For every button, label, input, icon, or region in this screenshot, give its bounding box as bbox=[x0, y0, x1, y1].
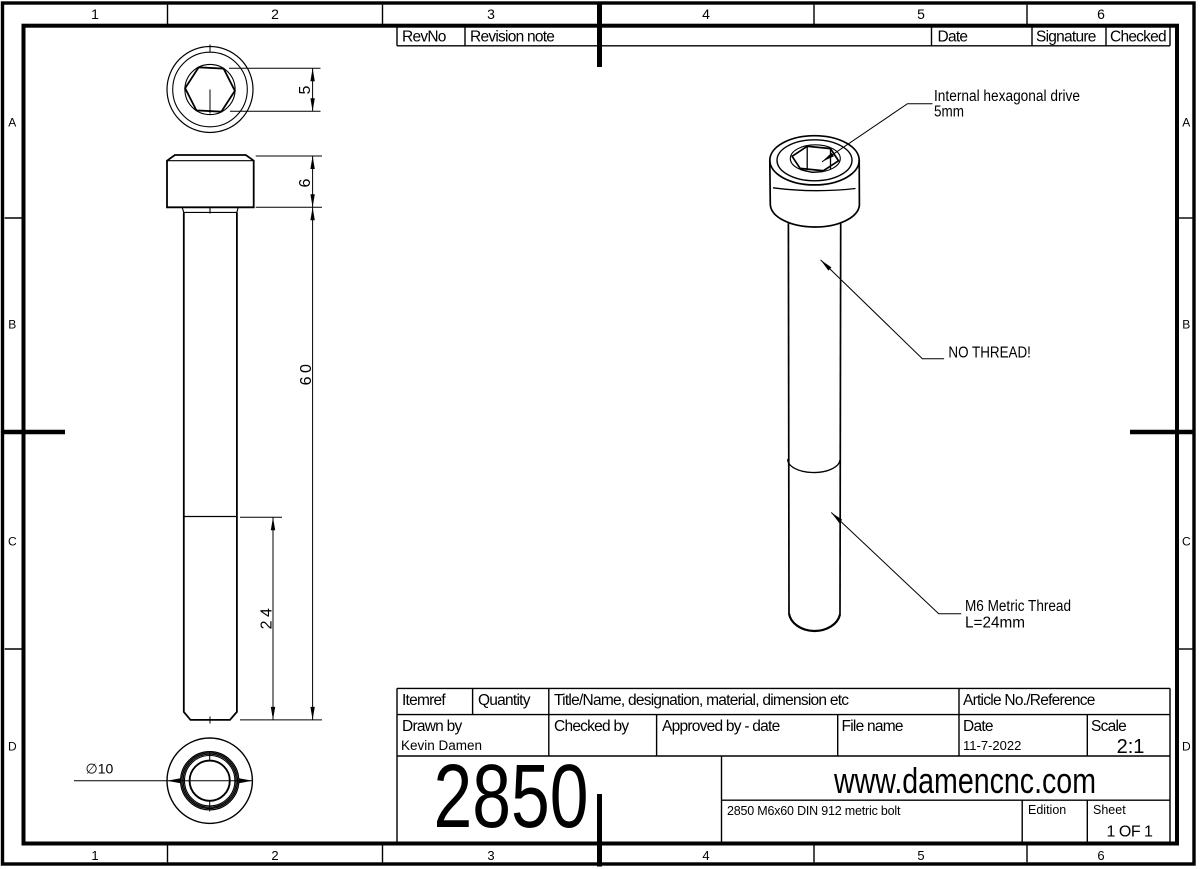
svg-text:Scale: Scale bbox=[1091, 718, 1126, 735]
svg-text:Checked: Checked bbox=[1110, 29, 1166, 46]
svg-text:Itemref: Itemref bbox=[402, 692, 446, 709]
svg-text:2:1: 2:1 bbox=[1117, 736, 1145, 758]
svg-text:L=24mm: L=24mm bbox=[965, 615, 1025, 632]
svg-text:3: 3 bbox=[487, 6, 495, 22]
svg-text:24: 24 bbox=[259, 605, 276, 630]
svg-text:File name: File name bbox=[842, 718, 903, 735]
svg-text:2850 M6x60 DIN 912 metric bolt: 2850 M6x60 DIN 912 metric bolt bbox=[727, 804, 901, 818]
svg-text:2: 2 bbox=[271, 6, 279, 22]
svg-text:Article No./Reference: Article No./Reference bbox=[963, 692, 1095, 709]
svg-text:3: 3 bbox=[487, 848, 494, 863]
svg-text:NO THREAD!: NO THREAD! bbox=[948, 345, 1031, 362]
svg-text:A: A bbox=[8, 116, 16, 130]
svg-text:5: 5 bbox=[917, 848, 924, 863]
svg-text:Date: Date bbox=[938, 29, 968, 46]
svg-text:4: 4 bbox=[702, 848, 709, 863]
svg-text:5mm: 5mm bbox=[934, 104, 964, 121]
svg-text:∅10: ∅10 bbox=[86, 761, 114, 777]
svg-text:C: C bbox=[8, 535, 17, 549]
svg-text:2: 2 bbox=[271, 848, 278, 863]
svg-text:2850: 2850 bbox=[434, 747, 589, 847]
svg-text:1: 1 bbox=[91, 6, 99, 22]
svg-text:M6 Metric Thread: M6 Metric Thread bbox=[965, 598, 1071, 615]
svg-text:www.damencnc.com: www.damencnc.com bbox=[833, 760, 1096, 801]
svg-text:C: C bbox=[1182, 535, 1191, 549]
svg-text:6: 6 bbox=[1097, 6, 1105, 22]
svg-text:60: 60 bbox=[298, 361, 315, 386]
svg-text:6: 6 bbox=[1097, 848, 1104, 863]
svg-text:Checked by: Checked by bbox=[554, 718, 629, 735]
svg-text:Signature: Signature bbox=[1036, 29, 1096, 46]
svg-text:Date: Date bbox=[963, 718, 993, 735]
svg-text:1: 1 bbox=[91, 848, 98, 863]
svg-text:1 OF 1: 1 OF 1 bbox=[1107, 824, 1154, 841]
svg-text:6: 6 bbox=[297, 178, 314, 187]
svg-text:5: 5 bbox=[917, 6, 925, 22]
svg-text:A: A bbox=[1182, 116, 1190, 130]
svg-text:Revision note: Revision note bbox=[470, 29, 554, 46]
svg-text:Drawn by: Drawn by bbox=[402, 718, 462, 735]
svg-text:Edition: Edition bbox=[1028, 803, 1066, 817]
svg-text:B: B bbox=[1182, 318, 1190, 332]
svg-text:D: D bbox=[1182, 740, 1191, 754]
svg-text:Sheet: Sheet bbox=[1093, 803, 1126, 817]
svg-text:4: 4 bbox=[702, 6, 710, 22]
svg-text:D: D bbox=[8, 740, 17, 754]
svg-text:Title/Name, designation, mater: Title/Name, designation, material, dimen… bbox=[554, 692, 849, 709]
svg-text:B: B bbox=[8, 318, 16, 332]
svg-text:RevNo: RevNo bbox=[402, 29, 446, 46]
svg-text:5: 5 bbox=[297, 85, 314, 94]
svg-text:11-7-2022: 11-7-2022 bbox=[963, 738, 1021, 753]
svg-text:Internal hexagonal drive: Internal hexagonal drive bbox=[934, 88, 1080, 105]
svg-text:Quantity: Quantity bbox=[478, 692, 531, 709]
svg-text:Approved by - date: Approved by - date bbox=[662, 718, 780, 735]
